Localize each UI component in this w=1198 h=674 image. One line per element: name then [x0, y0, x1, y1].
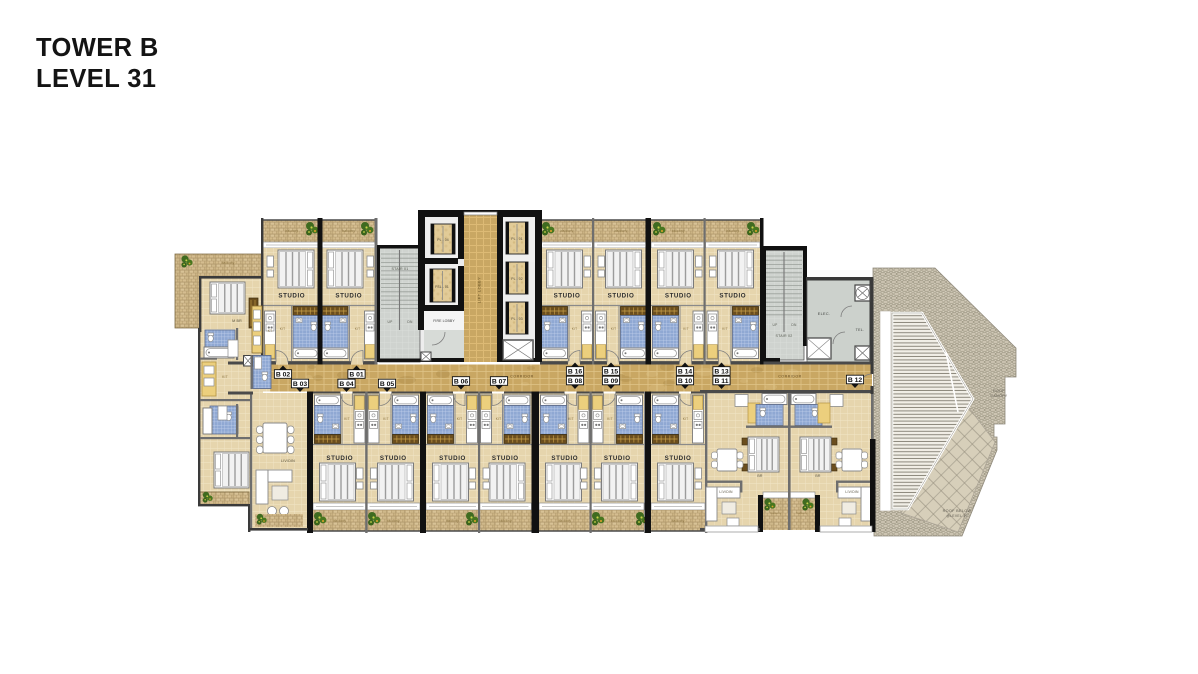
svg-text:STUDIO: STUDIO: [665, 455, 692, 462]
svg-text:B 14: B 14: [678, 369, 693, 376]
svg-text:KIT: KIT: [683, 327, 689, 331]
svg-text:KIT: KIT: [722, 327, 728, 331]
svg-text:DN: DN: [407, 320, 413, 324]
svg-text:KIT: KIT: [683, 417, 689, 421]
svg-text:STAIR 02: STAIR 02: [776, 334, 793, 338]
svg-text:B 09: B 09: [604, 378, 619, 385]
svg-text:BR: BR: [815, 474, 821, 478]
svg-text:balcony: balcony: [499, 519, 512, 523]
svg-text:M BR: M BR: [232, 319, 242, 323]
svg-text:STUDIO: STUDIO: [380, 455, 407, 462]
svg-text:STUDIO: STUDIO: [335, 293, 362, 300]
svg-text:balcony: balcony: [770, 511, 781, 515]
svg-text:FIRE LOBBY: FIRE LOBBY: [433, 319, 455, 323]
svg-text:LIV/DIN: LIV/DIN: [281, 459, 295, 463]
svg-text:balcony: balcony: [672, 229, 685, 233]
svg-text:PL - 03: PL - 03: [511, 317, 523, 321]
svg-text:TEL.: TEL.: [856, 328, 865, 332]
svg-text:KT: KT: [268, 329, 272, 333]
svg-text:balcony: balcony: [333, 519, 346, 523]
svg-text:balcony: balcony: [285, 229, 298, 233]
svg-text:B 07: B 07: [492, 379, 507, 386]
svg-text:balcony: balcony: [558, 519, 571, 523]
svg-text:STUDIO: STUDIO: [439, 455, 466, 462]
svg-text:B 13: B 13: [714, 369, 729, 376]
svg-text:KIT: KIT: [568, 417, 574, 421]
svg-text:STUDIO: STUDIO: [551, 455, 578, 462]
svg-text:KIT: KIT: [222, 375, 228, 379]
svg-text:CORRIDOR: CORRIDOR: [510, 375, 534, 379]
svg-text:ROOF: ROOF: [993, 389, 1005, 393]
svg-text:balcony: balcony: [726, 229, 739, 233]
svg-text:B 08: B 08: [568, 378, 583, 385]
svg-text:PL - 01: PL - 01: [511, 237, 523, 241]
svg-text:STUDIO: STUDIO: [326, 455, 353, 462]
svg-text:balcony: balcony: [342, 229, 355, 233]
svg-text:B 10: B 10: [678, 378, 693, 385]
svg-text:balcony: balcony: [614, 229, 627, 233]
svg-text:STUDIO: STUDIO: [278, 293, 305, 300]
svg-text:balcony: balcony: [221, 261, 234, 265]
svg-text:balcony: balcony: [796, 511, 807, 515]
svg-text:B 03: B 03: [293, 381, 308, 388]
svg-text:LIFT LOBBY: LIFT LOBBY: [478, 277, 482, 303]
svg-text:B 12: B 12: [848, 377, 863, 384]
svg-text:DN: DN: [791, 323, 797, 327]
svg-text:B 02: B 02: [276, 372, 291, 379]
svg-text:STAIR 01: STAIR 01: [392, 267, 409, 271]
svg-text:ELEC.: ELEC.: [818, 312, 830, 316]
svg-text:B 15: B 15: [604, 369, 619, 376]
svg-text:KIT: KIT: [457, 417, 463, 421]
svg-text:STUDIO: STUDIO: [608, 293, 635, 300]
svg-text:B 06: B 06: [454, 379, 469, 386]
svg-text:KIT: KIT: [344, 417, 350, 421]
svg-text:KIT: KIT: [611, 327, 617, 331]
svg-text:CANOPY: CANOPY: [991, 394, 1008, 398]
svg-text:KIT: KIT: [572, 327, 578, 331]
svg-text:KIT: KIT: [607, 417, 613, 421]
svg-text:STUDIO: STUDIO: [665, 293, 692, 300]
svg-text:balcony: balcony: [671, 519, 684, 523]
svg-text:STUDIO: STUDIO: [604, 455, 631, 462]
svg-text:balcony: balcony: [446, 519, 459, 523]
svg-text:B 01: B 01: [349, 372, 364, 379]
svg-text:CORRIDOR: CORRIDOR: [778, 375, 802, 379]
svg-text:balcony: balcony: [611, 519, 624, 523]
svg-text:STUDIO: STUDIO: [492, 455, 519, 462]
svg-text:KIT: KIT: [355, 327, 361, 331]
svg-text:KIT: KIT: [496, 417, 502, 421]
svg-text:KIT: KIT: [383, 417, 389, 421]
svg-text:balcony: balcony: [560, 229, 573, 233]
svg-text:KIT: KIT: [280, 327, 286, 331]
svg-text:@LEVEL 30: @LEVEL 30: [946, 514, 967, 518]
svg-text:B 16: B 16: [568, 369, 583, 376]
svg-text:balcony: balcony: [387, 519, 400, 523]
svg-text:TOWER B: TOWER B: [36, 34, 159, 62]
svg-text:LIV/DIN: LIV/DIN: [719, 490, 733, 494]
svg-text:STUDIO: STUDIO: [719, 293, 746, 300]
svg-text:LEVEL 31: LEVEL 31: [36, 65, 156, 93]
svg-text:UP: UP: [773, 323, 779, 327]
svg-text:UP: UP: [388, 320, 394, 324]
svg-text:B 05: B 05: [380, 381, 395, 388]
svg-text:FSL - 01: FSL - 01: [435, 285, 449, 289]
svg-text:BR: BR: [757, 474, 763, 478]
svg-text:B 04: B 04: [339, 381, 354, 388]
svg-text:B 11: B 11: [715, 378, 729, 385]
svg-text:PL - 02: PL - 02: [511, 277, 523, 281]
svg-text:LIV/DIN: LIV/DIN: [845, 490, 859, 494]
svg-text:ROOF BELOW: ROOF BELOW: [943, 509, 972, 513]
svg-text:PL - 04: PL - 04: [437, 238, 449, 242]
svg-text:STUDIO: STUDIO: [554, 293, 581, 300]
